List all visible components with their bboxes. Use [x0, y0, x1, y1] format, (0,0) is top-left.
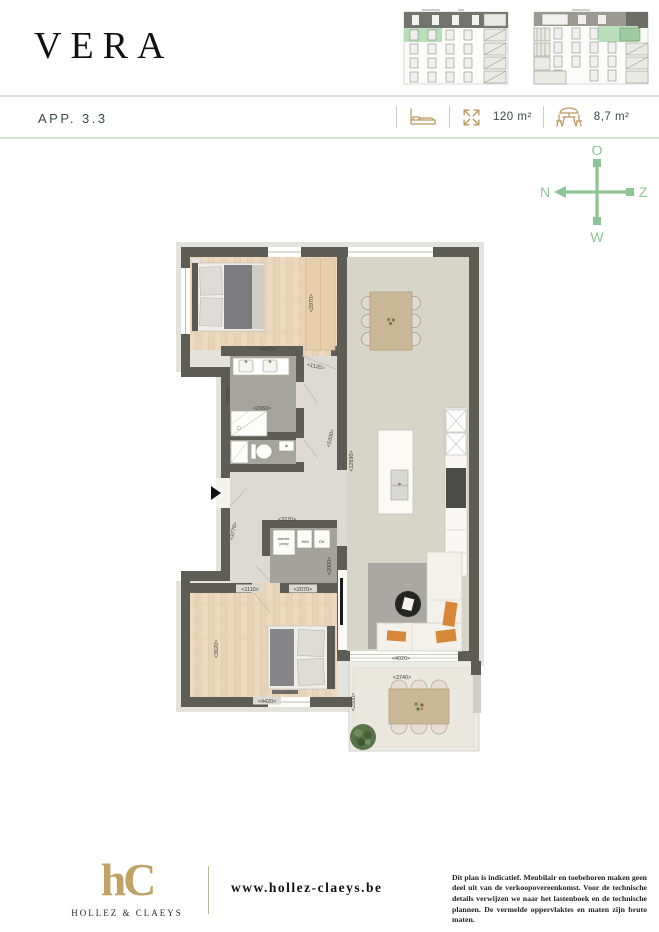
apartment-stats: 120 m² 8,7 m²	[396, 97, 629, 137]
dimension-label: <3620>	[214, 640, 220, 658]
dimension-label: pomp	[280, 542, 289, 546]
floor-area-value: 120 m²	[493, 111, 532, 123]
expand-icon	[461, 107, 482, 128]
toilet	[251, 444, 272, 459]
dimension-label: <2540>	[226, 386, 232, 404]
tv-panel	[338, 570, 347, 650]
dimension-label: <3270>	[278, 517, 296, 523]
project-title: VERA	[34, 24, 173, 68]
divider	[449, 106, 450, 128]
compass-west-label: W	[590, 229, 604, 245]
dimension-label: <12690>	[349, 450, 355, 471]
bedroom-2-furniture	[268, 626, 335, 694]
dimension-label: <4420>	[258, 347, 276, 353]
terrace-centerpiece	[414, 701, 424, 711]
page: VERA	[0, 0, 659, 932]
compass: O N Z W	[540, 146, 650, 246]
dimension-label: <2000>	[327, 557, 333, 575]
divider	[543, 106, 544, 128]
footer-divider	[208, 866, 209, 914]
dimension-label: warmte-	[278, 537, 292, 541]
terrace-icon	[555, 106, 583, 129]
agency-logo: hC HOLLEZ & CLAEYS	[64, 854, 190, 918]
disclaimer-text: Dit plan is indicatief. Meubilair en toe…	[452, 873, 647, 926]
dimension-label: <4420>	[258, 699, 276, 705]
dimension-label: <1110>	[241, 587, 259, 593]
corridor-floor	[304, 356, 337, 472]
dimension-label: <2970>	[309, 294, 315, 312]
terrace-area-value: 8,7 m²	[594, 111, 630, 123]
building-elevations	[402, 6, 650, 90]
dimension-label: <2060>	[253, 406, 271, 412]
header-band: APP. 3.3 120 m² 8,7 m²	[0, 95, 659, 139]
dimension-label: DK	[319, 539, 325, 544]
compass-north-label: N	[540, 184, 550, 200]
kitchen-counter	[445, 408, 467, 576]
terrace	[349, 661, 481, 751]
building-elevation-left	[404, 10, 508, 84]
website-link[interactable]: www.hollez-claeys.be	[231, 880, 421, 896]
dimension-label: <4020>	[392, 656, 410, 662]
building-elevation-right	[534, 10, 648, 84]
compass-south-label: Z	[639, 184, 648, 200]
floor-plan-svg: <4420><2970><1120><2540><2060><5300><126…	[170, 240, 490, 760]
dimension-label: <2070>	[294, 587, 312, 593]
terrace-plant	[350, 724, 376, 750]
dimension-label: <2500>	[351, 693, 357, 711]
agency-logo-mark: hC	[64, 854, 190, 906]
dimension-label: WM	[301, 539, 308, 544]
bed-icon	[408, 106, 438, 128]
agency-brand-name: HOLLEZ & CLAEYS	[64, 908, 190, 918]
dining-centerpiece	[387, 317, 396, 326]
dimension-label: <3740>	[393, 675, 411, 681]
apartment-number: APP. 3.3	[38, 111, 108, 126]
divider	[396, 106, 397, 128]
cooktop	[446, 468, 466, 508]
compass-east-label: O	[592, 146, 603, 158]
